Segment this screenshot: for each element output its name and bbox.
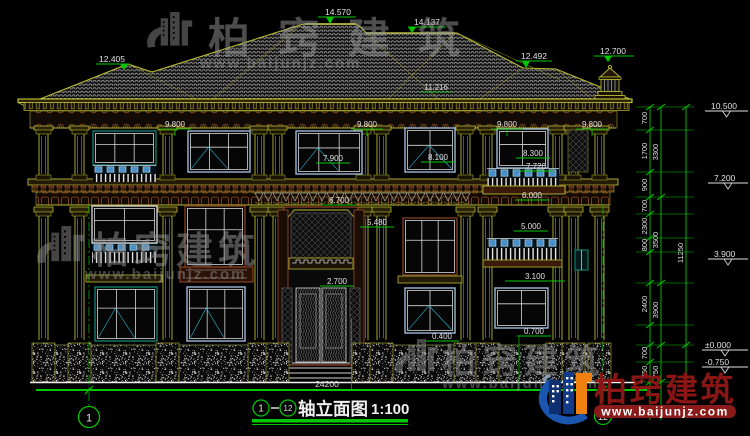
svg-text:9.800: 9.800 (582, 120, 603, 129)
svg-text:9.800: 9.800 (165, 120, 186, 129)
svg-text:9.800: 9.800 (357, 120, 378, 129)
svg-text:柏窍建筑: 柏窍建筑 (92, 230, 260, 271)
svg-text:12.492: 12.492 (521, 51, 547, 61)
svg-text:11250: 11250 (676, 243, 685, 263)
svg-text:8.300: 8.300 (523, 149, 544, 158)
svg-text:11.216: 11.216 (424, 83, 448, 92)
svg-text:7.720: 7.720 (526, 162, 547, 171)
svg-text:www.baijunjz.com: www.baijunjz.com (84, 266, 246, 283)
svg-text:±0.000: ±0.000 (705, 340, 731, 350)
svg-text:0.700: 0.700 (524, 327, 545, 336)
svg-text:8.100: 8.100 (428, 153, 449, 162)
svg-text:800: 800 (640, 239, 649, 252)
svg-text:3500: 3500 (651, 232, 660, 249)
svg-text:24200: 24200 (315, 379, 339, 389)
svg-text:6.700: 6.700 (329, 196, 350, 205)
svg-text:-0.750: -0.750 (705, 357, 729, 367)
svg-text:7.900: 7.900 (323, 154, 344, 163)
svg-text:6.000: 6.000 (522, 191, 543, 200)
svg-text:1: 1 (258, 404, 264, 415)
svg-text:1: 1 (86, 413, 92, 425)
svg-text:2400: 2400 (640, 296, 649, 313)
svg-text:3.900: 3.900 (714, 249, 736, 259)
svg-text:700: 700 (640, 112, 649, 125)
svg-text:0.400: 0.400 (432, 332, 453, 341)
svg-text:3900: 3900 (651, 302, 660, 319)
svg-text:12: 12 (284, 404, 293, 413)
svg-text:3300: 3300 (651, 144, 660, 161)
svg-text:7.200: 7.200 (714, 173, 736, 183)
svg-text:2.700: 2.700 (327, 277, 348, 286)
svg-text:9.800: 9.800 (497, 120, 518, 129)
svg-text:700: 700 (640, 347, 649, 360)
svg-text:900: 900 (640, 179, 649, 192)
svg-text:www.baijunjz.com: www.baijunjz.com (199, 55, 361, 72)
svg-text:5.480: 5.480 (367, 218, 388, 227)
svg-text:3.100: 3.100 (525, 272, 546, 281)
svg-text:12.700: 12.700 (600, 46, 626, 56)
svg-text:10.500: 10.500 (711, 101, 737, 111)
svg-text:柏窍建筑: 柏窍建筑 (594, 371, 736, 408)
svg-text:1:100: 1:100 (371, 401, 409, 418)
svg-text:700: 700 (640, 200, 649, 213)
svg-text:1700: 1700 (640, 143, 649, 160)
svg-text:5.000: 5.000 (521, 222, 542, 231)
svg-text:www.baijunjz.com: www.baijunjz.com (600, 405, 729, 419)
svg-text:轴立面图: 轴立面图 (298, 399, 368, 419)
svg-text:12.405: 12.405 (99, 54, 125, 64)
svg-text:2300: 2300 (640, 218, 649, 235)
